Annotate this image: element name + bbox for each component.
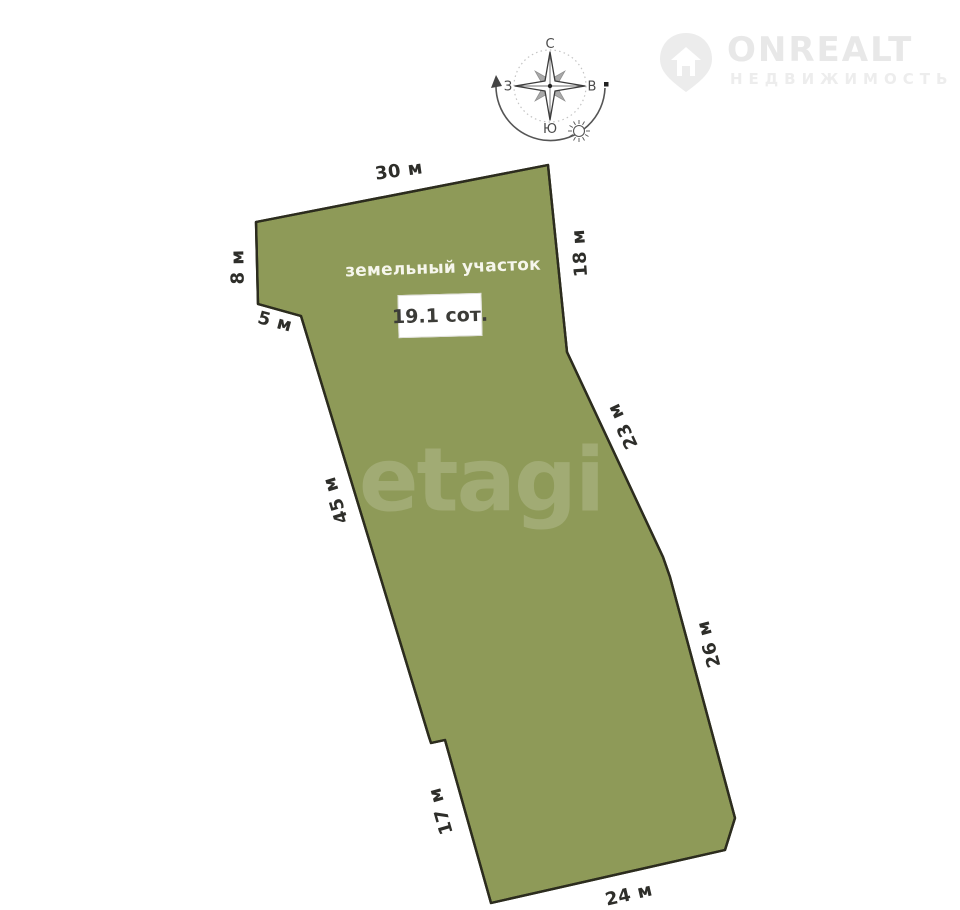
dimension-label-left-upper: 8 м <box>227 249 249 284</box>
compass-rose: С Ю В З <box>491 37 609 142</box>
land-plot-diagram: С Ю В З etagi земельный участок <box>0 0 960 910</box>
sun-icon <box>568 120 590 142</box>
compass-east-label: В <box>588 80 597 95</box>
brand-name: ONREALT <box>727 30 913 70</box>
area-value: 19.1 сот. <box>392 303 489 328</box>
etagi-watermark: etagi <box>359 429 603 532</box>
compass-center-dot <box>548 84 552 88</box>
compass-south-label: Ю <box>543 122 557 137</box>
compass-north-label: С <box>545 37 554 52</box>
brand-pin-icon <box>656 30 716 94</box>
arc-arrowhead <box>491 75 502 88</box>
compass-west-label: З <box>504 80 512 95</box>
arc-start-dot <box>604 82 609 87</box>
brand-logo: ONREALT НЕДВИЖИМОСТЬ <box>656 28 946 94</box>
dimension-label-right-upper: 18 м <box>568 228 592 277</box>
brand-subtitle: НЕДВИЖИМОСТЬ <box>730 70 953 88</box>
area-box: 19.1 сот. <box>397 293 482 338</box>
